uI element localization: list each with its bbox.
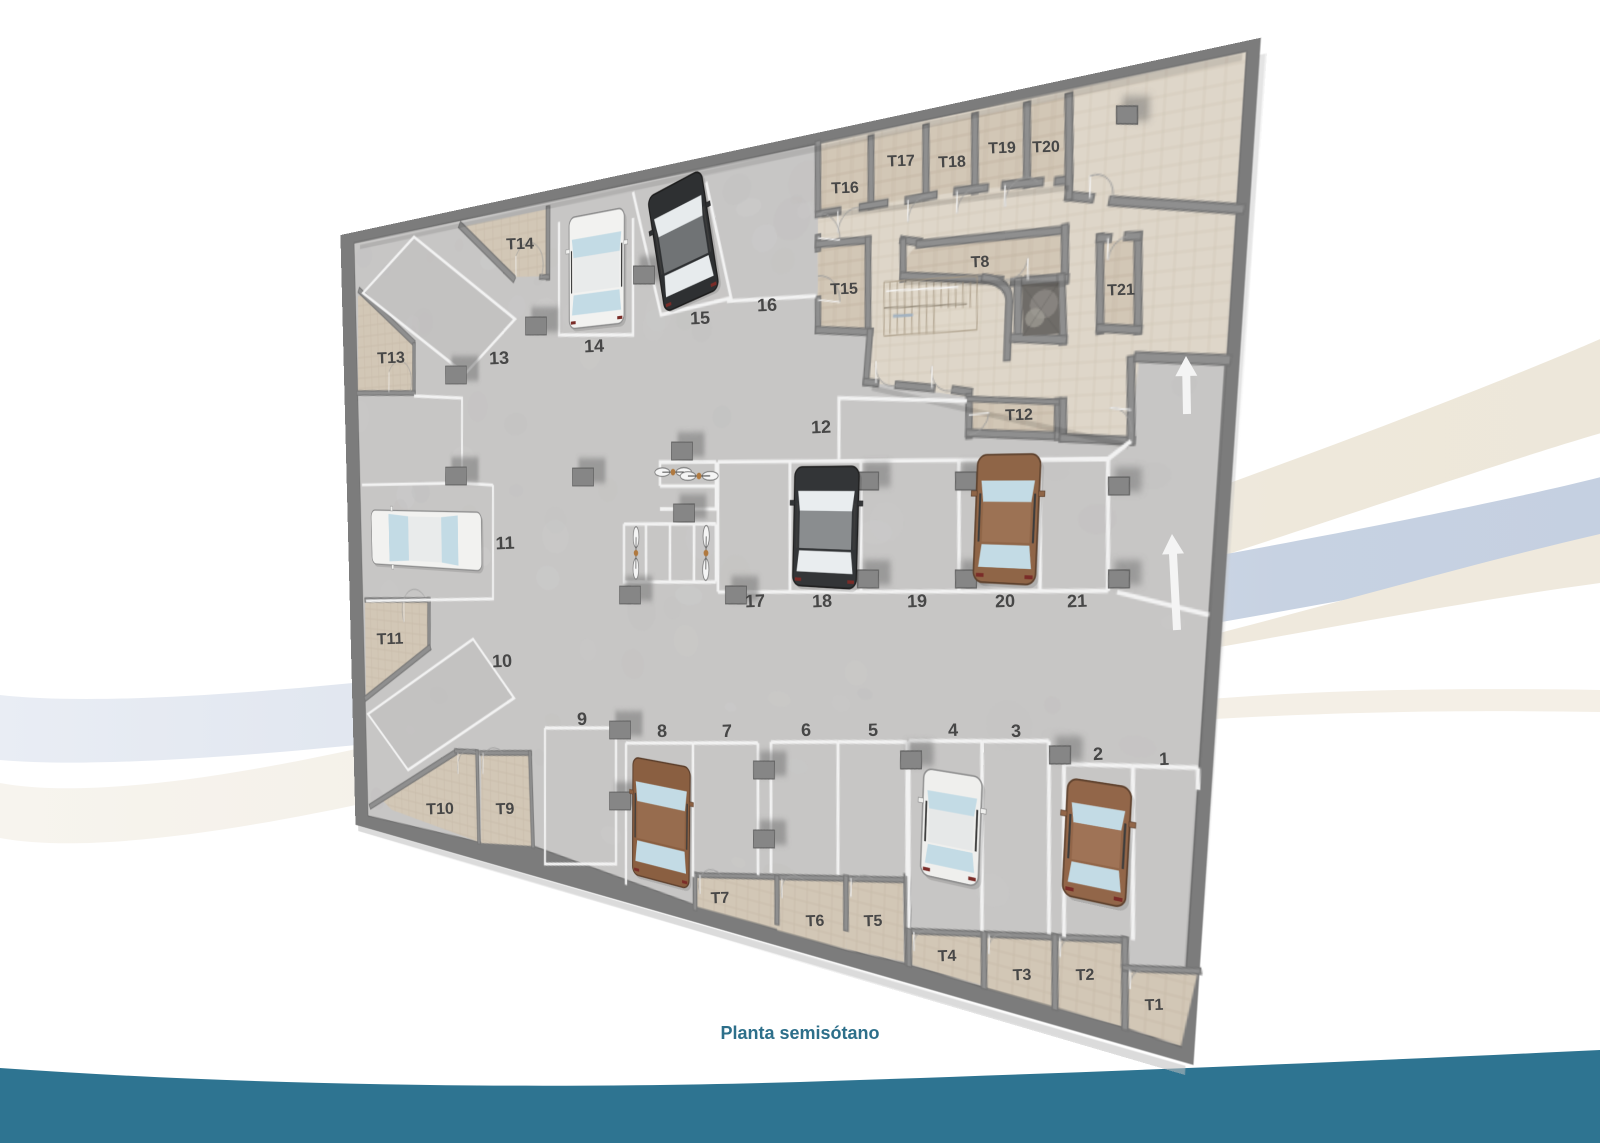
svg-text:T14: T14 xyxy=(506,236,534,254)
svg-text:15: 15 xyxy=(690,308,711,329)
svg-text:4: 4 xyxy=(948,720,959,740)
svg-text:T3: T3 xyxy=(1012,967,1031,985)
svg-text:T9: T9 xyxy=(495,801,514,819)
svg-text:T12: T12 xyxy=(1005,407,1033,425)
svg-text:T4: T4 xyxy=(937,948,956,966)
svg-text:T20: T20 xyxy=(1032,139,1060,157)
svg-text:T5: T5 xyxy=(863,913,882,931)
svg-text:6: 6 xyxy=(801,720,812,740)
svg-text:T17: T17 xyxy=(887,153,915,171)
svg-text:8: 8 xyxy=(657,721,668,741)
svg-text:3: 3 xyxy=(1011,721,1022,741)
svg-text:1: 1 xyxy=(1159,749,1170,769)
svg-text:2: 2 xyxy=(1093,744,1104,764)
svg-text:T15: T15 xyxy=(830,281,858,299)
svg-text:12: 12 xyxy=(811,417,832,438)
svg-text:20: 20 xyxy=(995,591,1016,612)
svg-text:10: 10 xyxy=(492,651,513,672)
svg-text:T11: T11 xyxy=(376,631,403,649)
svg-text:19: 19 xyxy=(907,591,928,612)
svg-text:18: 18 xyxy=(812,591,833,612)
svg-text:T1: T1 xyxy=(1144,997,1163,1015)
svg-text:T16: T16 xyxy=(831,180,859,198)
svg-text:21: 21 xyxy=(1067,591,1088,612)
svg-text:11: 11 xyxy=(495,533,515,554)
svg-text:9: 9 xyxy=(577,709,588,729)
svg-text:5: 5 xyxy=(868,720,879,740)
svg-text:Planta semisótano: Planta semisótano xyxy=(720,1023,879,1043)
svg-text:T18: T18 xyxy=(938,154,966,172)
svg-text:13: 13 xyxy=(489,348,510,369)
svg-text:T6: T6 xyxy=(805,913,824,931)
svg-text:T7: T7 xyxy=(710,890,729,908)
svg-text:T8: T8 xyxy=(970,254,989,272)
svg-text:17: 17 xyxy=(745,591,766,612)
svg-text:14: 14 xyxy=(584,336,605,357)
svg-text:T13: T13 xyxy=(377,350,405,368)
svg-text:7: 7 xyxy=(722,721,733,741)
svg-text:T21: T21 xyxy=(1107,282,1135,300)
svg-text:T19: T19 xyxy=(988,140,1016,158)
svg-text:T10: T10 xyxy=(426,801,454,819)
svg-text:16: 16 xyxy=(757,295,778,316)
svg-text:T2: T2 xyxy=(1075,967,1094,985)
